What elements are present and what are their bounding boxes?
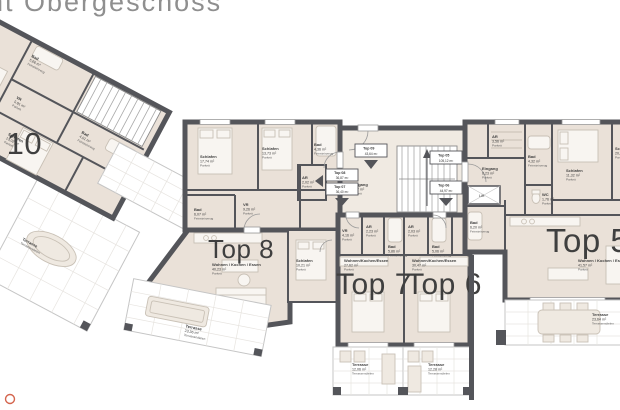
terrace-table-icon — [538, 310, 600, 334]
chair-icon — [354, 351, 365, 362]
chair-icon — [408, 351, 419, 362]
apartment-label-top7: Top 7 — [336, 268, 412, 301]
lounger-icon — [408, 366, 421, 392]
chair-icon — [560, 335, 571, 342]
floorplan-canvas: Terrasse Terrassendielen — [0, 0, 620, 410]
registration-mark-icon — [6, 395, 15, 404]
chair-icon — [422, 351, 433, 362]
top5-terrace: Terrasse 23,64 m² Terrassendielen — [496, 300, 620, 345]
apartment-label-top10: Top 10 — [0, 126, 42, 161]
chair-icon — [340, 351, 351, 362]
core-entry-door — [358, 125, 378, 131]
top6-terrace: Terrasse 12,28 m² Terrassendielen — [398, 347, 471, 395]
chair-icon — [577, 303, 588, 310]
top5-lift: Lift — [468, 186, 500, 204]
top7-terrace: Terrasse 12,06 m² Terrassendielen — [333, 347, 403, 395]
table-icon — [238, 274, 250, 286]
floorplan-svg: Terrasse Terrassendielen — [0, 0, 620, 410]
lift-label: Lift — [479, 193, 485, 198]
pillow-icon — [298, 242, 309, 249]
chair-icon — [543, 303, 554, 310]
page-title: nt Obergeschoss — [0, 0, 222, 17]
lounger-icon — [382, 354, 395, 384]
chair-icon — [543, 335, 554, 342]
apartment-label-top5: Top 5 — [546, 222, 620, 259]
chair-icon — [577, 335, 588, 342]
chair-icon — [560, 303, 571, 310]
